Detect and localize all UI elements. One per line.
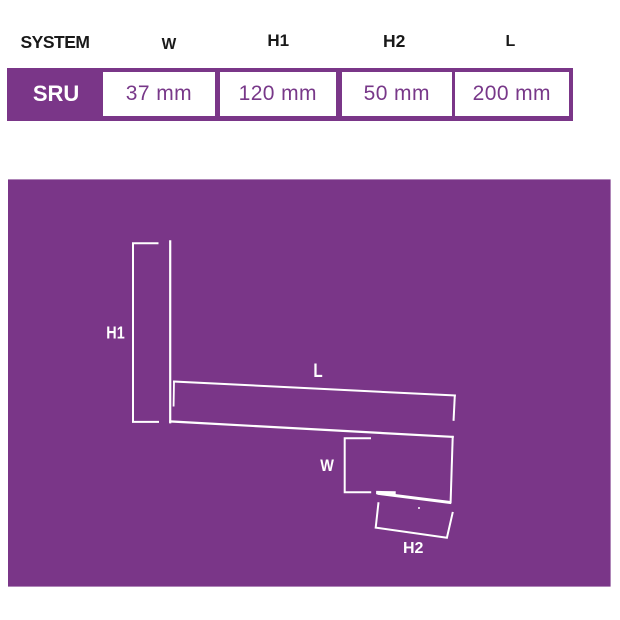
svg-text:H2: H2 xyxy=(403,540,424,557)
svg-text:W: W xyxy=(320,457,334,475)
svg-text:H1: H1 xyxy=(106,323,124,343)
svg-text:L: L xyxy=(313,359,322,381)
